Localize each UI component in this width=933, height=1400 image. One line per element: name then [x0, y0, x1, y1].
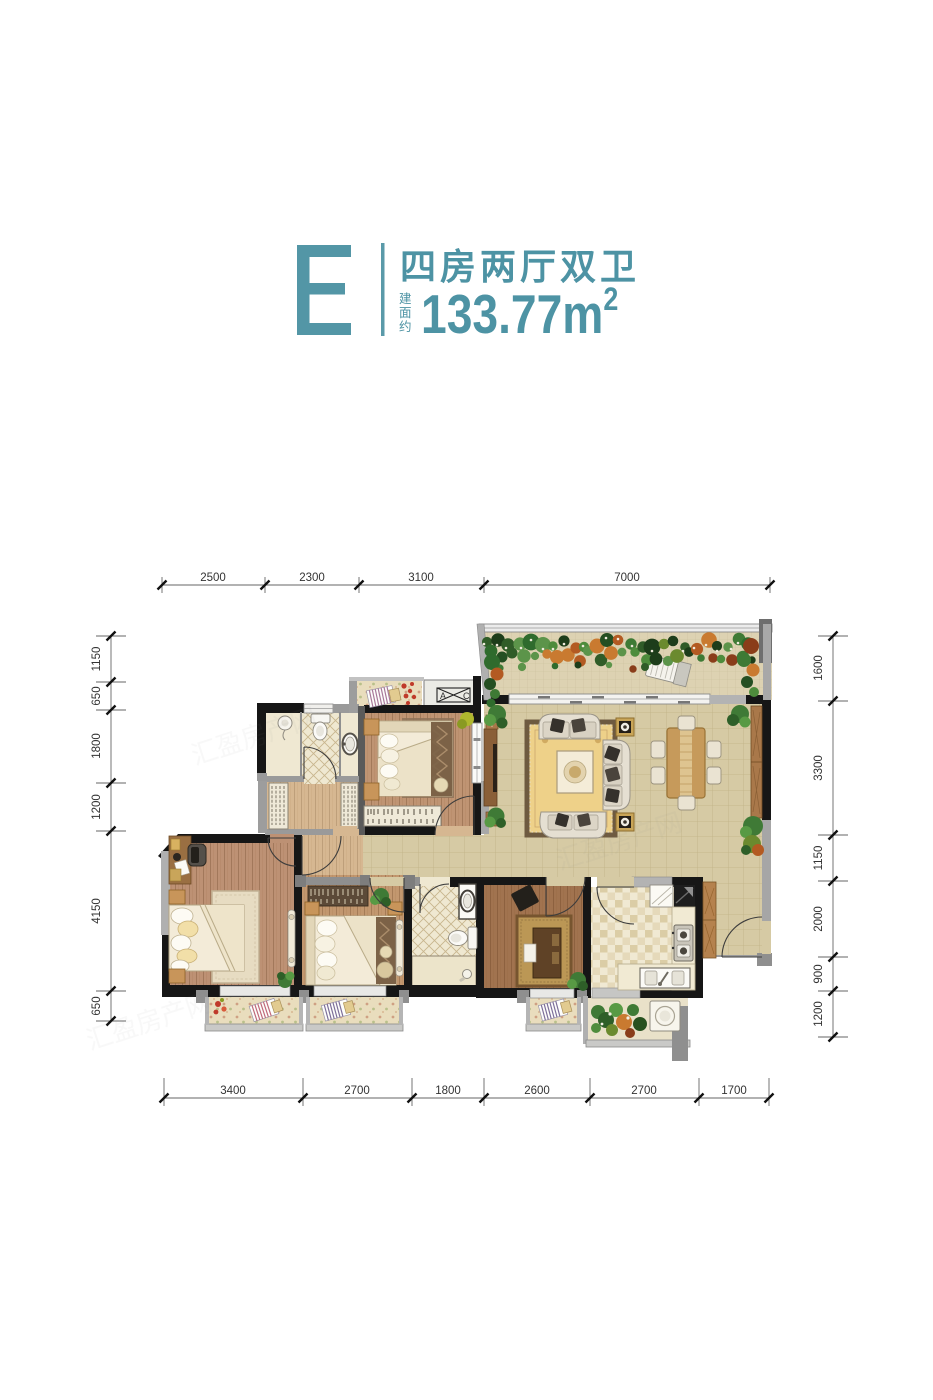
svg-text:1150: 1150 — [813, 846, 825, 871]
svg-text:7000: 7000 — [614, 572, 640, 584]
svg-text:2700: 2700 — [631, 1085, 657, 1097]
svg-text:2600: 2600 — [524, 1085, 550, 1097]
svg-text:1700: 1700 — [721, 1085, 747, 1097]
svg-text:2500: 2500 — [200, 572, 226, 584]
svg-text:3300: 3300 — [813, 755, 825, 781]
svg-text:1200: 1200 — [91, 794, 103, 820]
svg-text:1150: 1150 — [91, 647, 103, 672]
svg-text:1200: 1200 — [813, 1001, 825, 1027]
svg-text:建: 建 — [399, 292, 412, 306]
svg-text:C: C — [463, 691, 470, 701]
svg-text:3100: 3100 — [408, 572, 434, 584]
svg-text:1800: 1800 — [91, 733, 103, 759]
svg-text:650: 650 — [91, 996, 103, 1015]
svg-text:四房两厅双卫: 四房两厅双卫 — [400, 246, 640, 287]
svg-text:650: 650 — [91, 686, 103, 705]
svg-text:1600: 1600 — [813, 655, 825, 681]
svg-text:面: 面 — [399, 306, 412, 320]
svg-text:4150: 4150 — [91, 898, 103, 924]
svg-text:900: 900 — [813, 964, 825, 983]
svg-text:3400: 3400 — [220, 1085, 246, 1097]
svg-text:2700: 2700 — [344, 1085, 370, 1097]
svg-text:1800: 1800 — [435, 1085, 461, 1097]
svg-text:约: 约 — [399, 319, 412, 334]
svg-text:A: A — [440, 691, 446, 701]
svg-text:2300: 2300 — [299, 572, 325, 584]
svg-text:2000: 2000 — [813, 906, 825, 932]
svg-text:133.77m2: 133.77m2 — [421, 282, 618, 345]
